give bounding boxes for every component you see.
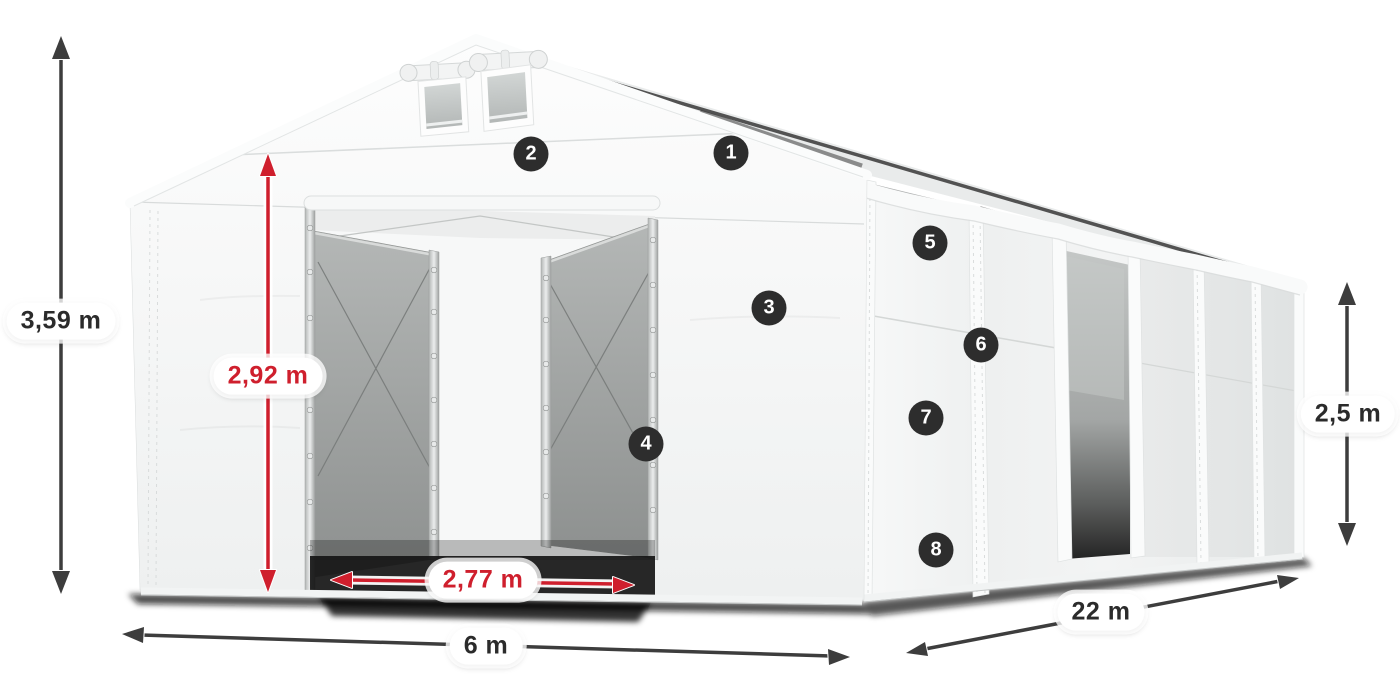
- dimension-label-total-height: 3,59 m: [7, 303, 116, 340]
- dimension-label-length: 22 m: [1058, 594, 1145, 631]
- tent-illustration: [0, 0, 1400, 700]
- callout-5: 5: [913, 226, 948, 261]
- callout-3: 3: [752, 291, 787, 326]
- side-door-opening: [1062, 250, 1130, 559]
- callout-7: 7: [909, 401, 944, 436]
- callout-8: 8: [919, 533, 954, 568]
- product-diagram: 3,59 m 2,92 m 2,77 m 6 m 22 m 2,5 m 1 2 …: [0, 0, 1400, 700]
- dimension-label-side-height: 2,5 m: [1301, 396, 1395, 433]
- dimension-label-width: 6 m: [450, 628, 523, 665]
- dimension-label-entrance-width: 2,77 m: [429, 562, 538, 599]
- dimension-label-entrance-height: 2,92 m: [214, 358, 323, 395]
- front-door-opening: [304, 196, 660, 597]
- callout-2: 2: [514, 137, 549, 172]
- callout-1: 1: [714, 136, 749, 171]
- callout-6: 6: [964, 328, 999, 363]
- callout-4: 4: [629, 427, 664, 462]
